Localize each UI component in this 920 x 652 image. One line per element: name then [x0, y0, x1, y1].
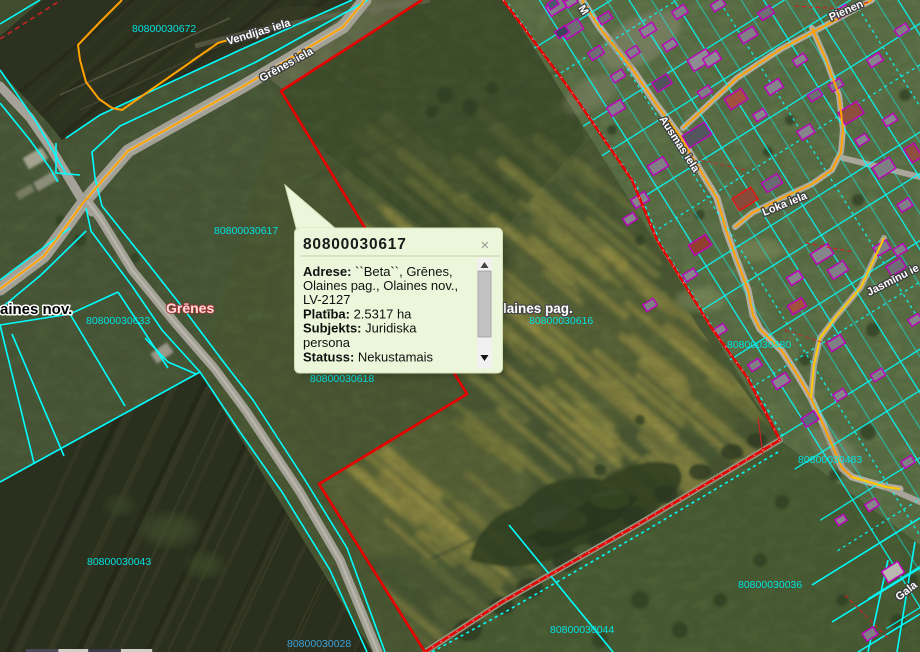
svg-text:Grēnes: Grēnes: [166, 300, 214, 316]
svg-text:80800030480: 80800030480: [727, 339, 791, 351]
svg-text:80800030028: 80800030028: [287, 638, 351, 650]
svg-text:80800030617: 80800030617: [303, 236, 407, 253]
svg-text:Subjekts: Juridiska: Subjekts: Juridiska: [303, 321, 417, 336]
svg-text:Adrese: ``Beta``, Grēnes,: Adrese: ``Beta``, Grēnes,: [303, 264, 453, 279]
svg-text:80800030633: 80800030633: [86, 315, 150, 327]
svg-text:80800030043: 80800030043: [87, 556, 151, 568]
svg-text:persona: persona: [303, 335, 351, 350]
svg-text:Olaines pag., Olaines nov.,: Olaines pag., Olaines nov.,: [303, 278, 458, 293]
svg-text:80800030616: 80800030616: [529, 315, 593, 327]
svg-text:aines nov.: aines nov.: [0, 301, 72, 318]
svg-text:80800030036: 80800030036: [738, 579, 802, 591]
svg-text:laines pag.: laines pag.: [503, 301, 573, 316]
svg-text:80800030672: 80800030672: [132, 23, 196, 35]
svg-text:80800030483: 80800030483: [798, 454, 862, 466]
svg-text:LV-2127: LV-2127: [303, 292, 350, 307]
svg-text:×: ×: [481, 237, 490, 254]
svg-text:Platība: 2.5317 ha: Platība: 2.5317 ha: [303, 307, 412, 322]
svg-text:80800030617: 80800030617: [214, 225, 278, 237]
svg-text:80800030044: 80800030044: [550, 624, 614, 636]
svg-text:Statuss: Nekustamais: Statuss: Nekustamais: [303, 350, 434, 365]
